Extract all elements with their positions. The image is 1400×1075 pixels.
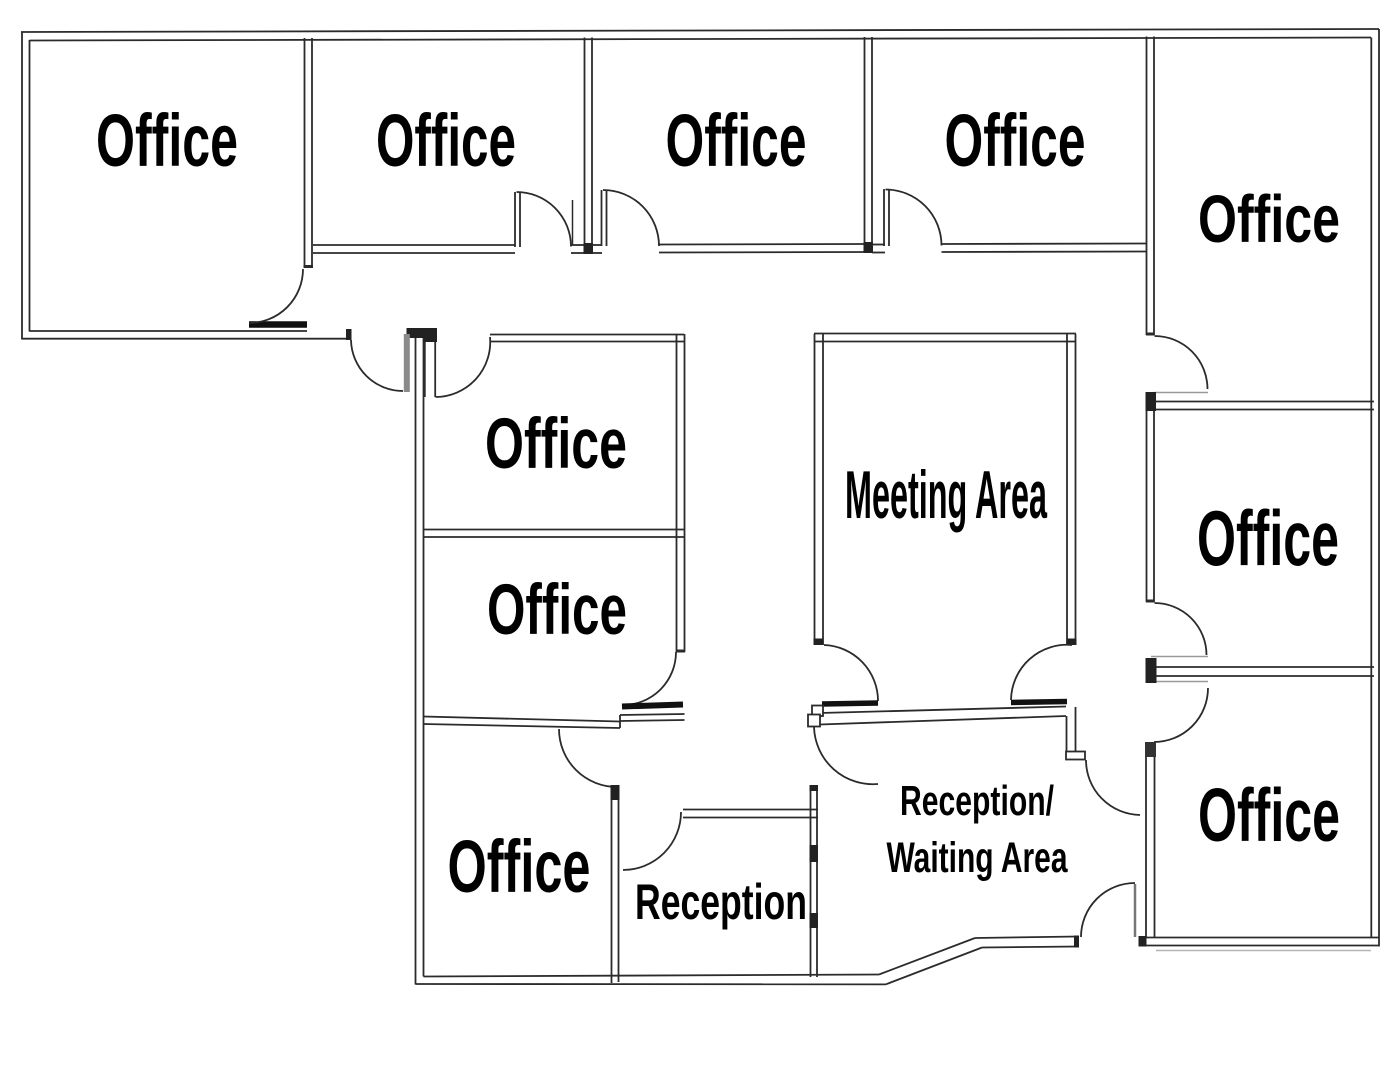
svg-text:Office: Office xyxy=(945,99,1086,182)
svg-text:Office: Office xyxy=(376,99,516,182)
svg-text:Office: Office xyxy=(487,571,627,650)
svg-text:Waiting Area: Waiting Area xyxy=(887,834,1069,882)
svg-text:Reception/: Reception/ xyxy=(900,777,1054,824)
svg-text:Meeting Area: Meeting Area xyxy=(845,457,1048,533)
svg-text:Office: Office xyxy=(96,99,238,182)
svg-text:Office: Office xyxy=(666,99,807,182)
svg-text:Office: Office xyxy=(1198,773,1340,857)
svg-text:Reception: Reception xyxy=(635,874,807,930)
svg-text:Office: Office xyxy=(448,825,591,908)
svg-text:Office: Office xyxy=(485,405,627,484)
svg-text:Office: Office xyxy=(1197,494,1339,582)
svg-text:Office: Office xyxy=(1198,182,1340,257)
